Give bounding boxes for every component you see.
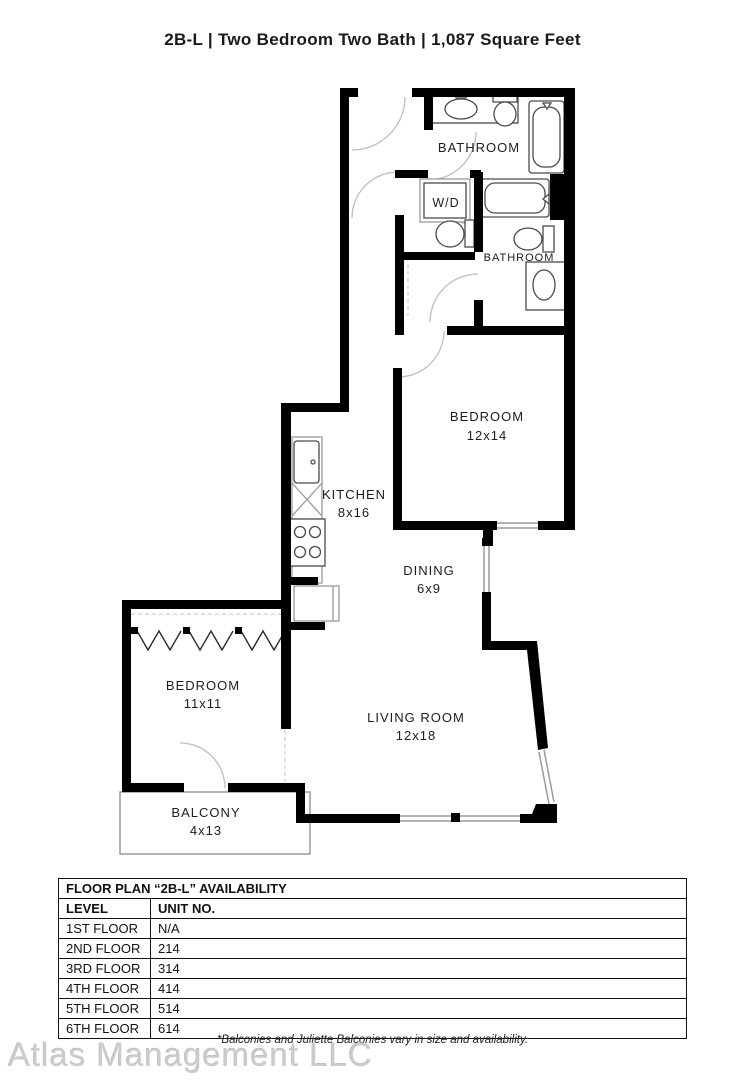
column-header-level: LEVEL xyxy=(59,899,151,919)
label-balcony-dims: 4x13 xyxy=(190,823,222,838)
toilet-1-icon xyxy=(494,102,516,126)
label-bedroom-main: BEDROOM xyxy=(450,409,524,424)
unit-cell: 514 xyxy=(151,999,687,1019)
level-cell: 2ND FLOOR xyxy=(59,939,151,959)
label-bedroom-main-dims: 12x14 xyxy=(467,428,507,443)
label-kitchen: KITCHEN xyxy=(322,487,386,502)
room-labels: BATHROOM W/D BATHROOM BEDROOM 12x14 KITC… xyxy=(166,140,554,838)
table-row: 1ST FLOOR N/A xyxy=(59,919,687,939)
kitchen-fixtures xyxy=(290,437,339,621)
label-living-room: LIVING ROOM xyxy=(367,710,465,725)
company-watermark: Atlas Management LLC xyxy=(8,1036,373,1074)
toilet-2-icon xyxy=(436,221,464,247)
column-header-unit: UNIT NO. xyxy=(151,899,687,919)
fridge-icon xyxy=(294,586,339,621)
unit-cell: 314 xyxy=(151,959,687,979)
label-laundry: W/D xyxy=(432,196,459,210)
level-cell: 4TH FLOOR xyxy=(59,979,151,999)
table-row: 4TH FLOOR 414 xyxy=(59,979,687,999)
label-bedroom-second-dims: 11x11 xyxy=(184,696,223,711)
label-kitchen-dims: 8x16 xyxy=(338,505,370,520)
sink-2-icon xyxy=(533,270,555,300)
table-row: 5TH FLOOR 514 xyxy=(59,999,687,1019)
label-bathroom-main: BATHROOM xyxy=(438,140,520,155)
label-bedroom-second: BEDROOM xyxy=(166,678,240,693)
unit-cell: 214 xyxy=(151,939,687,959)
sink-1-icon xyxy=(445,99,477,119)
label-living-room-dims: 12x18 xyxy=(396,728,436,743)
stove-icon xyxy=(290,519,325,566)
table-row: 3RD FLOOR 314 xyxy=(59,959,687,979)
availability-title-row: FLOOR PLAN “2B-L” AVAILABILITY xyxy=(59,879,687,899)
floor-plan-sheet: 2B-L | Two Bedroom Two Bath | 1,087 Squa… xyxy=(0,0,745,1080)
label-bathroom-second: BATHROOM xyxy=(484,252,555,264)
unit-cell: N/A xyxy=(151,919,687,939)
availability-title: FLOOR PLAN “2B-L” AVAILABILITY xyxy=(59,879,687,899)
toilet-3-icon xyxy=(514,228,542,250)
level-cell: 1ST FLOOR xyxy=(59,919,151,939)
label-balcony: BALCONY xyxy=(171,805,240,820)
level-cell: 3RD FLOOR xyxy=(59,959,151,979)
unit-cell: 414 xyxy=(151,979,687,999)
level-cell: 5TH FLOOR xyxy=(59,999,151,1019)
laundry-fixtures xyxy=(420,179,474,247)
label-dining: DINING xyxy=(403,563,455,578)
floor-plan-drawing: BATHROOM W/D BATHROOM BEDROOM 12x14 KITC… xyxy=(0,60,745,870)
toilet-3-tank xyxy=(543,226,554,252)
page-title: 2B-L | Two Bedroom Two Bath | 1,087 Squa… xyxy=(0,30,745,50)
bathroom-main-fixtures xyxy=(428,92,564,173)
label-dining-dims: 6x9 xyxy=(417,581,441,596)
availability-table: FLOOR PLAN “2B-L” AVAILABILITY LEVEL UNI… xyxy=(58,878,687,1039)
availability-header-row: LEVEL UNIT NO. xyxy=(59,899,687,919)
closet-hangers xyxy=(137,631,285,650)
table-row: 2ND FLOOR 214 xyxy=(59,939,687,959)
